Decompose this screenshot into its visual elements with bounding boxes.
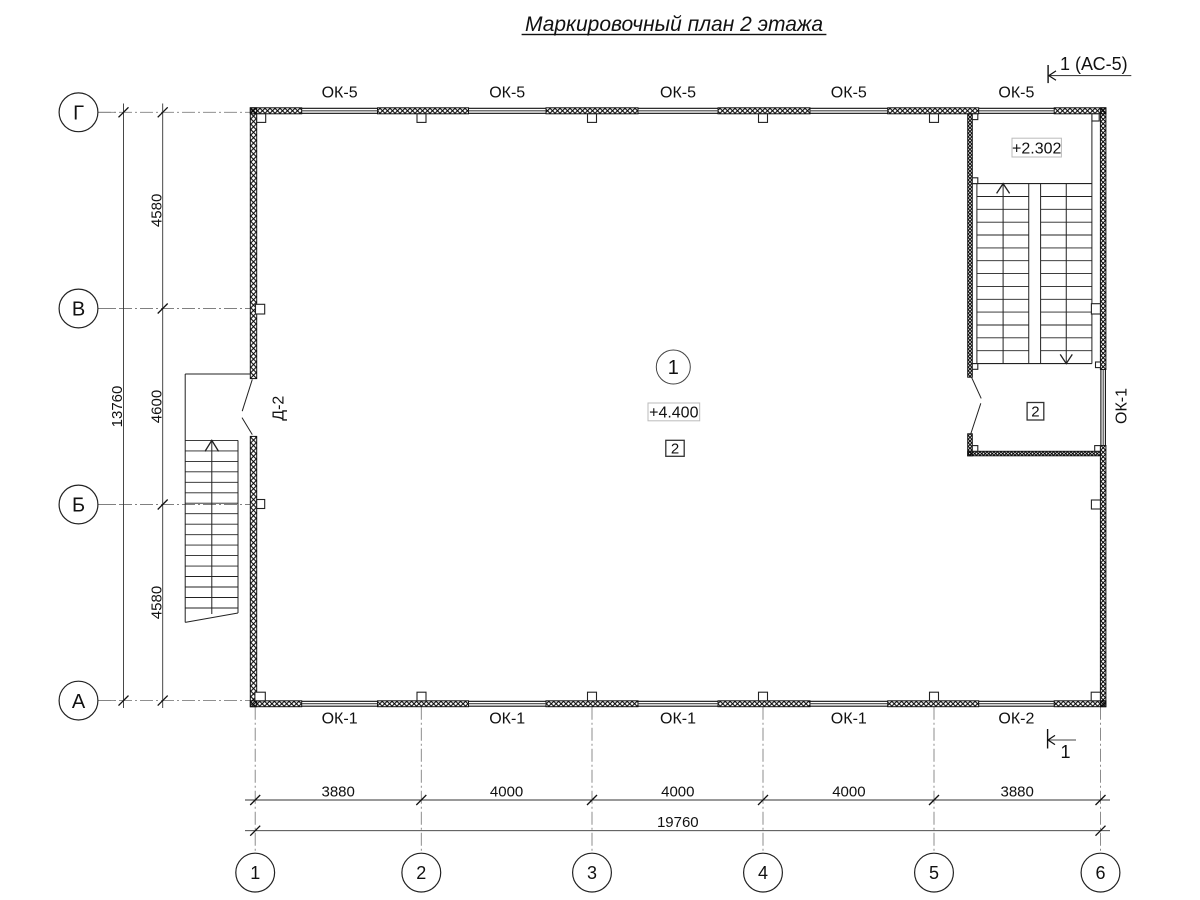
svg-text:+4.400: +4.400 [649, 405, 698, 422]
svg-text:ОК-1: ОК-1 [1114, 388, 1131, 424]
svg-text:2: 2 [1031, 404, 1039, 421]
svg-text:4: 4 [758, 863, 768, 883]
svg-text:ОК-5: ОК-5 [831, 84, 867, 101]
svg-text:4580: 4580 [148, 586, 165, 619]
svg-text:4580: 4580 [148, 194, 165, 227]
svg-text:3880: 3880 [322, 784, 355, 801]
svg-text:А: А [72, 691, 86, 713]
svg-text:ОК-1: ОК-1 [831, 710, 867, 727]
svg-text:Г: Г [73, 103, 84, 125]
svg-text:4000: 4000 [661, 784, 694, 801]
svg-text:13760: 13760 [109, 386, 126, 428]
svg-text:ОК-5: ОК-5 [322, 84, 358, 101]
svg-text:1: 1 [1061, 742, 1071, 762]
svg-text:1: 1 [668, 357, 679, 379]
svg-text:3880: 3880 [1001, 784, 1034, 801]
svg-text:19760: 19760 [657, 814, 699, 831]
svg-text:2: 2 [671, 441, 679, 458]
svg-text:ОК-5: ОК-5 [489, 84, 525, 101]
svg-text:4000: 4000 [832, 784, 865, 801]
svg-text:ОК-5: ОК-5 [998, 84, 1034, 101]
svg-text:ОК-1: ОК-1 [489, 710, 525, 727]
svg-text:ОК-1: ОК-1 [660, 710, 696, 727]
svg-text:3: 3 [587, 863, 597, 883]
svg-text:5: 5 [929, 863, 939, 883]
svg-text:6: 6 [1095, 863, 1105, 883]
svg-text:ОК-2: ОК-2 [998, 710, 1034, 727]
svg-text:Б: Б [72, 495, 85, 517]
svg-text:4600: 4600 [148, 390, 165, 423]
svg-text:1 (АС-5): 1 (АС-5) [1060, 54, 1128, 74]
svg-text:Д-2: Д-2 [270, 396, 287, 421]
svg-text:ОК-1: ОК-1 [322, 710, 358, 727]
svg-text:Маркировочный план 2 этажа: Маркировочный план 2 этажа [525, 13, 823, 36]
svg-text:+2.302: +2.302 [1012, 140, 1061, 157]
svg-text:ОК-5: ОК-5 [660, 84, 696, 101]
svg-text:2: 2 [416, 863, 426, 883]
svg-text:В: В [72, 299, 85, 321]
svg-text:4000: 4000 [490, 784, 523, 801]
svg-text:1: 1 [250, 863, 260, 883]
